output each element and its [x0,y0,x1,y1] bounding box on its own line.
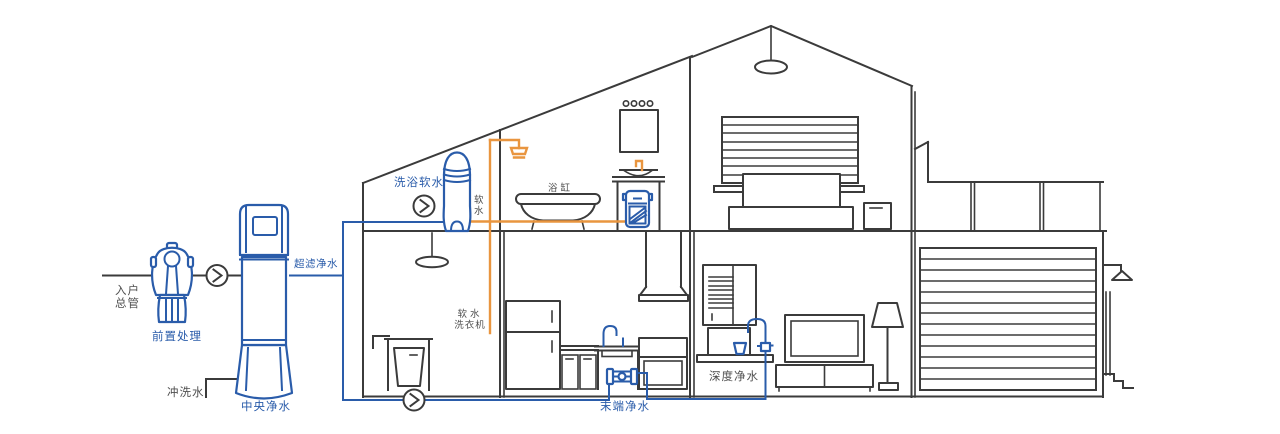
label-prefilter: 前置处理 [152,330,202,343]
railing-post [1106,292,1110,375]
label-soft-water-washer: 软水 洗衣机 [450,309,490,331]
flush-pipe [206,379,237,397]
flow-arrow-icon [207,265,228,286]
label-central-purifier: 中央净水 [241,400,291,413]
nightstand [864,203,891,229]
under-sink-filter-device [607,369,637,384]
label-inlet-main: 入户 总管 [115,284,140,309]
label-bath-softener: 洗浴软水 [394,176,444,189]
terminal-feed-pipe [343,384,609,400]
central-purifier-device [236,205,292,399]
dispenser-counter [697,355,773,362]
pre-filter-device [151,243,193,322]
cabinet-door [562,355,578,389]
mirror [620,110,658,152]
laundry-tap [373,336,389,348]
range-hood [640,233,687,295]
bath-softener-device [444,153,471,232]
label-terminal-purifier: 末端净水 [600,400,650,413]
bedroom [714,26,891,229]
label-ultrafiltration: 超滤净水 [294,258,338,271]
wall-lamp-icon [1103,265,1121,271]
label-bathtub: 浴缸 [548,183,573,194]
vanity-faucet-icon [636,161,642,170]
cabinet-door [580,355,596,389]
tv [785,315,864,362]
bed [729,207,853,229]
bed-headboard [743,174,840,207]
house-water-diagram: 入户 总管 前置处理 中央净水 冲洗水 超滤净水 洗浴软水 软水 浴缸 软水 洗… [0,0,1280,434]
flow-arrow-icon [414,196,435,217]
label-soft-water: 软水 [474,196,486,217]
garage [915,142,1133,390]
shower-head-icon [511,148,527,158]
kitchen-faucet-icon [604,326,624,346]
label-deep-purifier: 深度净水 [709,370,759,383]
vanity-purifier-device [623,191,652,227]
bathtub-bowl [521,204,595,221]
flow-arrow-icon [404,390,425,411]
floor-lamp-icon [872,303,903,327]
label-flush-water: 冲洗水 [167,386,205,399]
water-cup-icon [734,343,746,354]
diagram-canvas [0,0,1280,434]
laundry-room [373,233,448,390]
laundry-basin [394,348,424,386]
bathtub-rim [516,194,600,204]
stairs [1103,374,1133,388]
kitchen [506,233,688,389]
